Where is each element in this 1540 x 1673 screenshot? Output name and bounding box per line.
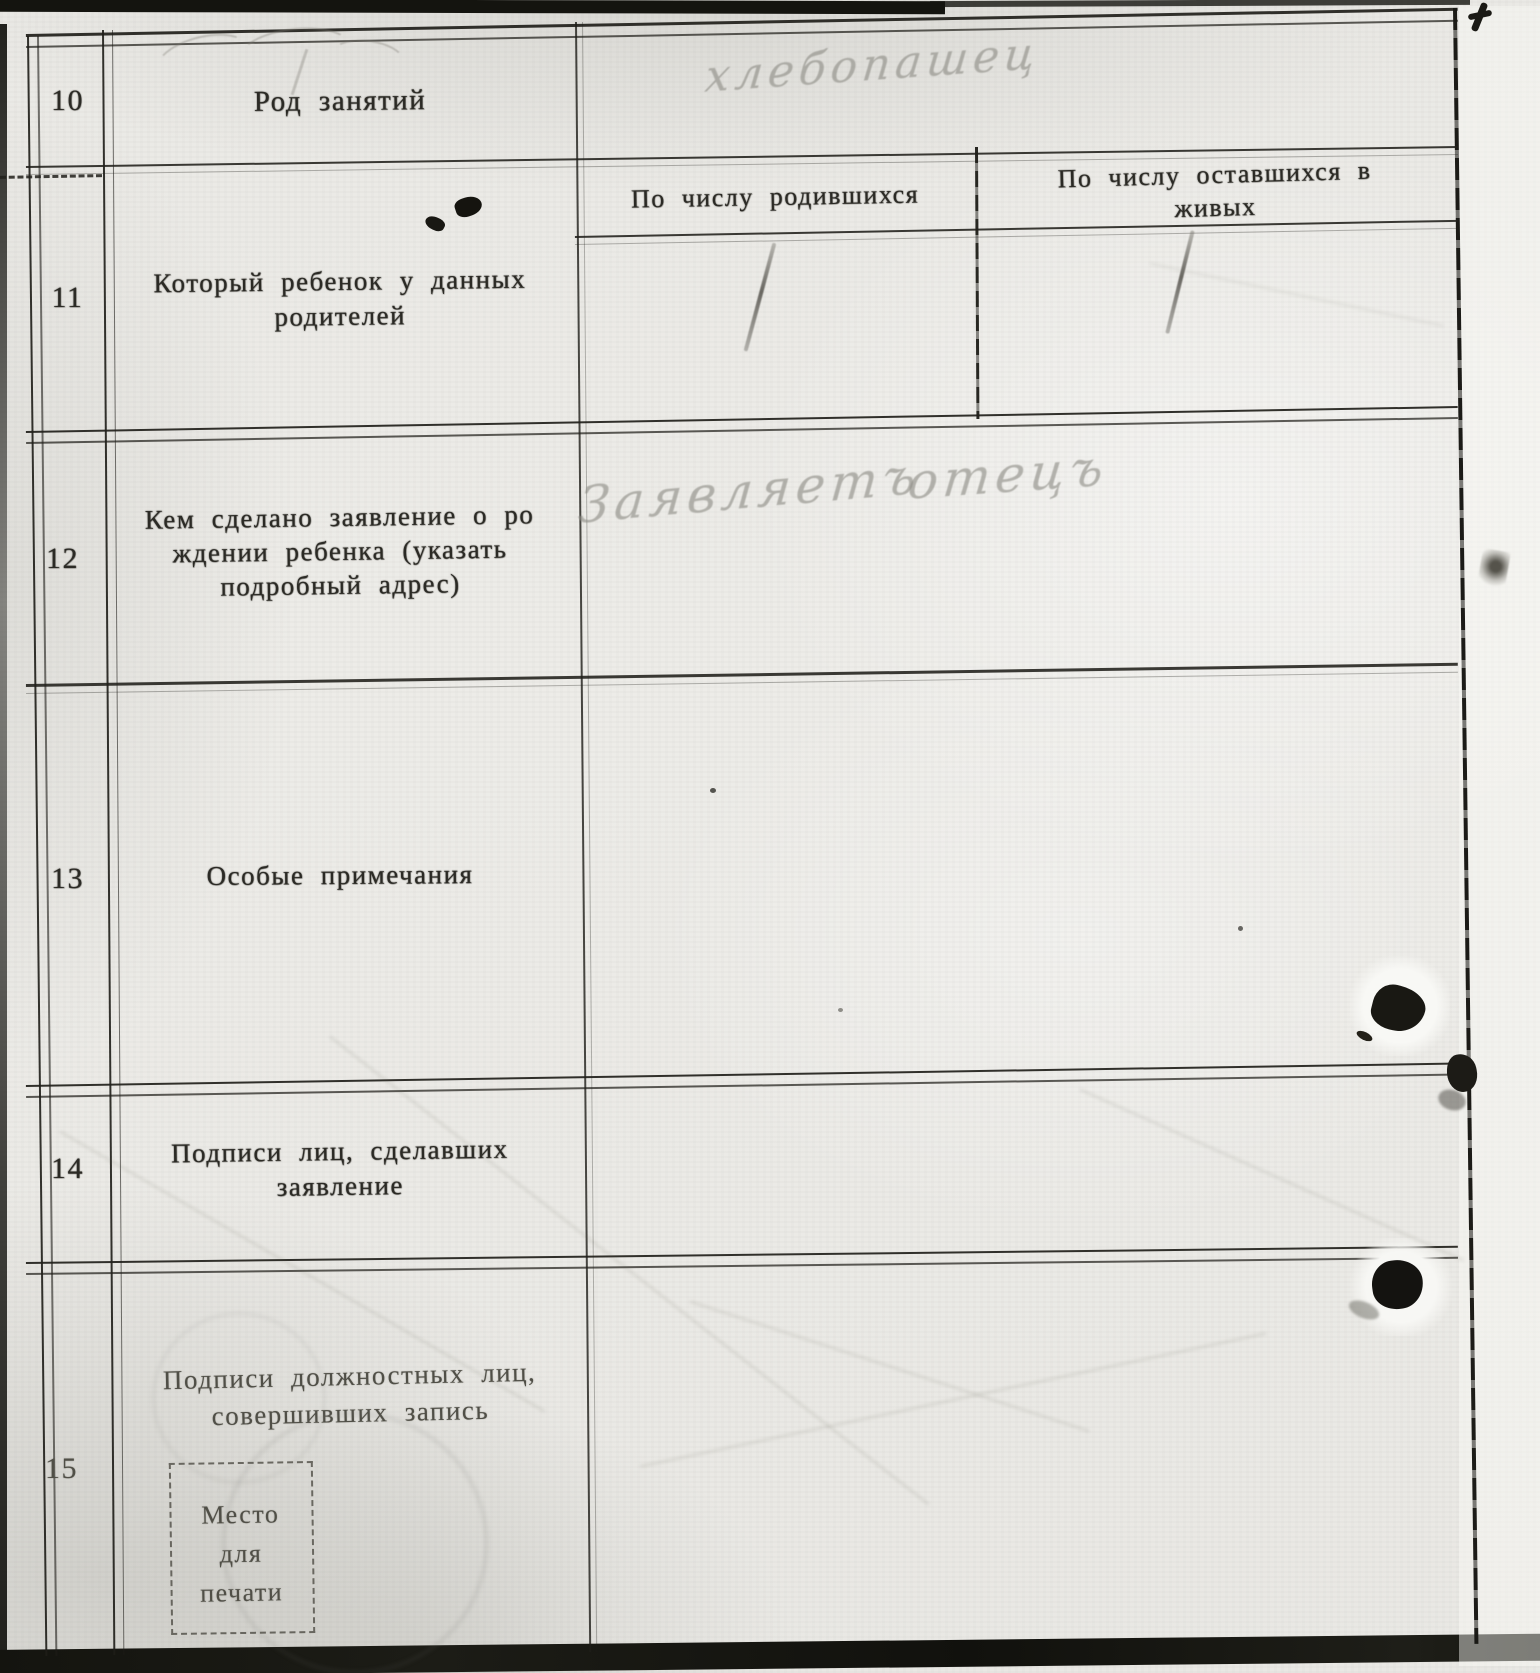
row-12-number: 12 — [25, 542, 100, 576]
row-12-entry-handwriting-word2: отецъ — [905, 439, 1111, 512]
row-13-number: 13 — [30, 862, 105, 896]
row-14-number: 14 — [30, 1152, 105, 1186]
scan-bottom-edge-band — [0, 1633, 1540, 1673]
faint-stamp-ring-small — [152, 1312, 326, 1484]
row-13-label: Особые примечания — [105, 856, 575, 894]
row-10-entry-handwriting: хлебопашец — [703, 28, 1043, 103]
tally-mark-born-count — [744, 242, 776, 351]
scanned-form-page: 10 Род занятий хлебопашец По числу родив… — [0, 0, 1540, 1673]
ink-fleck-large — [453, 193, 485, 219]
subheader-born-count: По числу родившихся — [585, 177, 966, 217]
row-10-number: 10 — [30, 84, 105, 118]
scan-top-edge-strip-right — [930, 0, 1470, 7]
tally-mark-alive-count — [1165, 230, 1194, 334]
paper-speck-3 — [838, 1008, 843, 1012]
paper-speck-1 — [710, 788, 716, 793]
faint-pencil-scribble-arc3 — [328, 35, 409, 83]
row-11-number: 11 — [30, 281, 105, 315]
subheader-alive-count: По числу оставшихся в живых — [974, 151, 1456, 230]
paper-crease-5 — [1079, 1088, 1464, 1261]
row-10-label: Род занятий — [105, 82, 575, 122]
row-15-number: 15 — [24, 1452, 99, 1486]
paper-speck-2 — [1238, 926, 1243, 931]
row-divider-12-13 — [26, 663, 1458, 694]
table-border-left — [27, 36, 57, 1656]
scan-top-edge-strip — [0, 0, 945, 14]
row-12-entry-handwriting-word1: Заявляетъ — [576, 447, 923, 536]
row-divider-10-11-dashed-left — [0, 174, 102, 179]
row-12-label: Кем сделано заявление о ро ждении ребенк… — [104, 497, 575, 606]
row-divider-11-12 — [26, 406, 1458, 444]
row-divider-13-14 — [26, 1063, 1458, 1098]
paper-crease-6 — [1150, 262, 1444, 327]
row-divider-14-15 — [26, 1246, 1458, 1275]
scan-left-edge-strip — [0, 24, 7, 1673]
row-11-label: Который ребенок у данных родителей — [105, 261, 576, 337]
ink-fleck-small — [423, 213, 447, 234]
